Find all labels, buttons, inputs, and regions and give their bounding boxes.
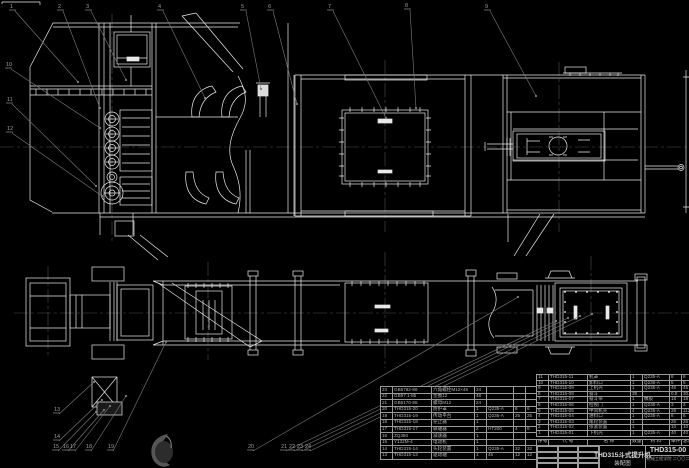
bom-cell: 6 xyxy=(514,406,526,413)
bom-cell: THD315-19 xyxy=(393,413,432,420)
leader-dot xyxy=(95,185,97,187)
bom-cell: 防护罩 xyxy=(432,406,475,413)
leader-line xyxy=(59,382,94,414)
bom-cell: 40 xyxy=(682,430,689,436)
drawing-title: THD315斗式提升机 xyxy=(594,449,651,459)
balloon-callouts: 123456789101112131415161718192021222324 xyxy=(5,3,593,451)
leader-line xyxy=(15,11,78,82)
bom-cell xyxy=(514,439,526,446)
bom-cell: 联轴器 xyxy=(432,426,475,433)
bom-cell: THD315-13 xyxy=(393,452,432,459)
bom-row: 17THD315-17联轴器2HT20048 xyxy=(381,426,549,433)
leader-dot xyxy=(260,88,262,90)
leader-line xyxy=(246,11,261,89)
bom-cell: 1 xyxy=(475,413,487,420)
bom-cell: GB97.1-85 xyxy=(393,393,432,400)
balloon-number: 1 xyxy=(10,4,13,10)
bom-cell xyxy=(514,393,526,400)
balloon-number: 21 xyxy=(281,444,287,450)
balloon-number: 20 xyxy=(248,444,254,450)
balloon-number: 3 xyxy=(86,4,89,10)
leader-line xyxy=(12,133,102,196)
leader-dot xyxy=(535,95,537,97)
leader-line xyxy=(163,11,205,98)
leader-line xyxy=(59,400,102,441)
bom-row: 21GB6170-86螺母M1224外购 xyxy=(381,400,549,407)
bom-cell: 10 xyxy=(682,425,689,431)
bom-cell: THD315-17 xyxy=(393,426,432,433)
bom-cell: 14 xyxy=(381,446,393,453)
bom-cell: 25 xyxy=(514,413,526,420)
signature-cell xyxy=(578,463,599,468)
bom-cell xyxy=(514,419,526,426)
bom-row: 23GB5782-86六角螺栓M12×4524外购 xyxy=(381,387,549,394)
leader-dot xyxy=(109,405,111,407)
balloon-number: 5 xyxy=(241,4,244,10)
leader-dot xyxy=(517,296,519,298)
bom-cell: 20 xyxy=(381,406,393,413)
bom-cell: 23 xyxy=(381,387,393,394)
bom-cell: 1 xyxy=(475,419,487,426)
leader-line xyxy=(63,11,100,108)
bom-cell: Q235-A xyxy=(487,446,514,453)
balloon-number: 8 xyxy=(405,3,408,9)
signature-cell xyxy=(537,463,558,468)
bom-cell: 减速器 xyxy=(432,433,475,440)
drawing-number-cell: THD315-00 机械工程学院 二〇〇二 xyxy=(646,446,689,468)
bom-cell: 1 xyxy=(537,430,549,436)
leader-dot xyxy=(103,409,105,411)
bom-cell xyxy=(487,419,514,426)
bom-row: 1THD315-01下机壳1Q235-A4040 xyxy=(537,430,689,436)
balloon-number: 18 xyxy=(86,444,92,450)
bom-cell xyxy=(514,433,526,440)
signature-cell xyxy=(558,463,579,468)
leader-dot xyxy=(579,315,581,317)
drawing-number: THD315-00 xyxy=(646,446,689,456)
bom-cell: THD315-01 xyxy=(549,430,588,436)
bom-cell xyxy=(487,400,514,407)
balloon-number: 4 xyxy=(158,4,161,10)
bom-cell: 逆止器 xyxy=(432,419,475,426)
bom-cell: 1 xyxy=(475,452,487,459)
bom-cell: 传动平台 xyxy=(432,413,475,420)
bom-cell: 下机壳 xyxy=(588,430,631,436)
bom-cell: 12 xyxy=(514,452,526,459)
bom-cell: 26 xyxy=(682,419,689,425)
bom-cell: 22 xyxy=(381,393,393,400)
bom-cell xyxy=(514,400,526,407)
balloon-number: 9 xyxy=(485,4,488,10)
balloon-number: 12 xyxy=(7,126,13,132)
leader-dot xyxy=(204,97,206,99)
title-block: THD315斗式提升机 装配图 THD315-00 机械工程学院 二〇〇二 xyxy=(536,445,689,468)
bom-row: 20THD315-20防护罩1Q235-A66 xyxy=(381,406,549,413)
bom-cell: 112 xyxy=(682,408,689,414)
balloon-number: 24 xyxy=(305,444,311,450)
leader-line xyxy=(12,104,96,186)
bom-cell: THD315-14 xyxy=(393,446,432,453)
bom-cell: GB5782-86 xyxy=(393,387,432,394)
balloon-number: 16 xyxy=(63,444,69,450)
drawing-title-cell: THD315斗式提升机 装配图 xyxy=(599,446,646,468)
leader-dot xyxy=(567,317,569,319)
balloon-number: 11 xyxy=(7,97,13,103)
leader-line xyxy=(11,69,100,128)
bom-cell: 垫圈12 xyxy=(432,393,475,400)
ink-smudge xyxy=(151,434,173,467)
bom-cell: 电动机 xyxy=(432,439,475,446)
balloon-number: 23 xyxy=(297,444,303,450)
leader-dot xyxy=(415,107,417,109)
bom-row: 14THD315-14头轮装置1Q235-A3232 xyxy=(381,446,549,453)
signature-grid xyxy=(537,446,599,468)
bom-cell: 18 xyxy=(682,397,689,403)
bom-cell: 24 xyxy=(475,387,487,394)
leader-dot xyxy=(95,411,97,413)
bom-table-right: 11THD315-11机罩1Q235-A8810THD315-10卸料口1Q23… xyxy=(536,374,689,437)
bom-table-left-wrap: 23GB5782-86六角螺栓M12×4524外购22GB97.1-85垫圈12… xyxy=(380,386,524,468)
bom-cell: 1 xyxy=(475,406,487,413)
bom-cell: 13 xyxy=(381,452,393,459)
bom-cell xyxy=(514,387,526,394)
leader-line xyxy=(91,11,126,80)
bom-cell: Q235-A xyxy=(643,430,670,436)
bom-cell: THD315-18 xyxy=(393,419,432,426)
leader-dot xyxy=(125,79,127,81)
bom-cell: 驱动轴 xyxy=(432,452,475,459)
balloon-number: 15 xyxy=(53,444,59,450)
bom-cell: THD315-20 xyxy=(393,406,432,413)
leader-dot xyxy=(101,195,103,197)
bom-cell: 4 xyxy=(514,426,526,433)
bom-table-left: 23GB5782-86六角螺栓M12×4524外购22GB97.1-85垫圈12… xyxy=(380,386,549,460)
elevation-view xyxy=(2,2,689,260)
balloon-number: 19 xyxy=(108,444,114,450)
bom-cell: 24 xyxy=(475,400,487,407)
balloon-number: 14 xyxy=(54,434,60,440)
bom-cell: 45 xyxy=(682,386,689,392)
bom-cell: HT200 xyxy=(487,426,514,433)
leader-dot xyxy=(93,381,95,383)
bom-cell: 19 xyxy=(381,413,393,420)
bom-cell: 16 xyxy=(381,433,393,440)
leader-dot xyxy=(296,103,298,105)
bom-cell: 2 xyxy=(475,426,487,433)
bom-cell: 1 xyxy=(475,446,487,453)
balloon-number: 13 xyxy=(54,407,60,413)
bom-cell: GB6170-86 xyxy=(393,400,432,407)
balloon-number: 10 xyxy=(6,62,12,68)
leader-dot xyxy=(77,81,79,83)
leader-dot xyxy=(125,395,127,397)
bom-cell: ZQ350 xyxy=(393,433,432,440)
leader-dot xyxy=(165,341,167,343)
balloon-number: 2 xyxy=(58,4,61,10)
leader-dot xyxy=(99,107,101,109)
bom-row: 13THD315-13驱动轴1451212 xyxy=(381,452,549,459)
bom-row: 15Y132M-4电动机1外购 xyxy=(381,439,549,446)
bom-cell: 头轮装置 xyxy=(432,446,475,453)
bom-cell: 1 xyxy=(631,430,643,436)
bom-cell xyxy=(487,393,514,400)
balloon-number: 17 xyxy=(70,444,76,450)
bom-cell: 1 xyxy=(475,439,487,446)
bom-cell: Q235-A xyxy=(487,406,514,413)
bom-cell: 45 xyxy=(487,452,514,459)
bom-cell: 1 xyxy=(475,433,487,440)
bom-cell: 32 xyxy=(514,446,526,453)
leader-dot xyxy=(385,117,387,119)
bom-cell: 30.4 xyxy=(682,391,689,397)
leader-dot xyxy=(591,313,593,315)
bom-cell: 18 xyxy=(381,419,393,426)
bom-cell xyxy=(487,387,514,394)
leader-line xyxy=(333,11,386,118)
bom-cell: 21 xyxy=(381,400,393,407)
leader-line xyxy=(490,11,536,96)
bom-row: 19THD315-19传动平台1Q235-A2525 xyxy=(381,413,549,420)
balloon-number: 6 xyxy=(268,4,271,10)
bom-table-right-wrap: 11THD315-11机罩1Q235-A8810THD315-10卸料口1Q23… xyxy=(536,374,689,439)
leader-line xyxy=(113,342,166,451)
bom-cell xyxy=(487,433,514,440)
bom-row: 22GB97.1-85垫圈1248外购 xyxy=(381,393,549,400)
drawing-subtitle: 装配图 xyxy=(614,459,631,467)
bom-cell xyxy=(487,439,514,446)
cad-screenshot: 123456789101112131415161718192021222324 … xyxy=(0,0,689,468)
bom-cell: 螺母M12 xyxy=(432,400,475,407)
bom-cell: 48 xyxy=(475,393,487,400)
bom-row: 18THD315-18逆止器1外购 xyxy=(381,419,549,426)
leader-dot xyxy=(99,127,101,129)
bom-cell: 17 xyxy=(381,426,393,433)
bom-cell: 15 xyxy=(381,439,393,446)
bom-row: 16ZQ350减速器1外购 xyxy=(381,433,549,440)
bom-cell: Y132M-4 xyxy=(393,439,432,446)
bom-cell: Q235-A xyxy=(487,413,514,420)
bom-cell: 40 xyxy=(670,430,682,436)
leader-dot xyxy=(101,399,103,401)
leader-line xyxy=(273,11,297,104)
balloon-number: 22 xyxy=(289,444,295,450)
balloon-number: 7 xyxy=(328,4,331,10)
leader-dot xyxy=(555,320,557,322)
leader-line xyxy=(410,10,416,108)
org-line: 机械工程学院 二〇〇二 xyxy=(646,456,689,462)
bom-cell: 六角螺栓M12×45 xyxy=(432,387,475,394)
